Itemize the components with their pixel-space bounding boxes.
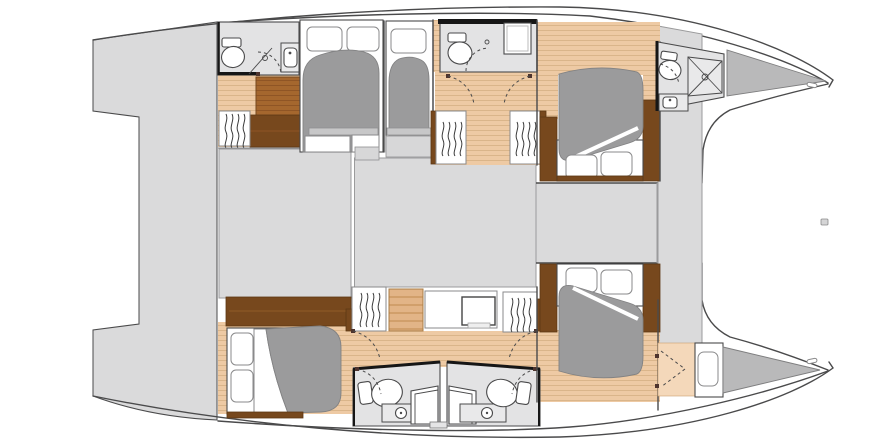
pillow — [231, 370, 253, 402]
pillow — [347, 27, 379, 51]
bilge-hatch — [430, 422, 447, 428]
drawer-chest — [389, 289, 423, 331]
wardrobe — [503, 292, 537, 332]
pillow — [601, 152, 632, 176]
wardrobe — [219, 111, 250, 148]
saloon-aft — [219, 149, 351, 298]
door-hinge — [655, 384, 659, 388]
wardrobe — [510, 111, 540, 164]
desk-panel — [462, 297, 495, 325]
shower-icon — [411, 386, 438, 424]
sink-icon — [281, 43, 299, 72]
door-hinge — [256, 72, 260, 76]
door-hinge — [655, 354, 659, 358]
wardrobe — [436, 111, 466, 164]
catamaran-floorplan — [0, 0, 890, 446]
saloon-forward — [355, 158, 537, 287]
bed-foot-shelf — [387, 128, 431, 135]
bed-base-trim — [227, 412, 303, 418]
port-aft-head — [218, 22, 299, 76]
pillow — [307, 27, 342, 51]
starboard-aft-cabin — [226, 297, 351, 418]
pillow — [566, 155, 597, 179]
pillow — [601, 270, 632, 294]
wardrobe — [352, 287, 386, 331]
bed-foot-shelf — [309, 128, 378, 135]
forward-cabin-floor — [537, 22, 660, 75]
starboard-left-head — [353, 362, 440, 426]
locker-floor — [658, 343, 695, 396]
bed-foot-locker — [386, 136, 431, 157]
pillow — [391, 29, 426, 53]
berth-cushion — [698, 352, 718, 386]
pillow — [231, 333, 253, 365]
trim — [431, 111, 436, 164]
floorplan-svg — [0, 0, 890, 446]
step-box — [355, 147, 379, 160]
desk-drawer — [468, 323, 490, 328]
shower-icon — [688, 57, 722, 96]
door-hinge — [355, 367, 359, 371]
bed-foot-locker — [305, 136, 350, 152]
trim — [346, 309, 352, 331]
port-mid-head — [438, 19, 537, 72]
windlass-fitting-icon — [821, 219, 828, 225]
dresser — [256, 77, 300, 117]
bed-side-rail — [540, 264, 557, 332]
bed-side-rail — [540, 117, 557, 181]
bed-side-rail — [643, 100, 660, 181]
sink-icon — [659, 94, 688, 111]
cabinet — [504, 23, 531, 54]
bed-base-trim — [557, 176, 643, 181]
starboard-right-head — [447, 362, 540, 426]
